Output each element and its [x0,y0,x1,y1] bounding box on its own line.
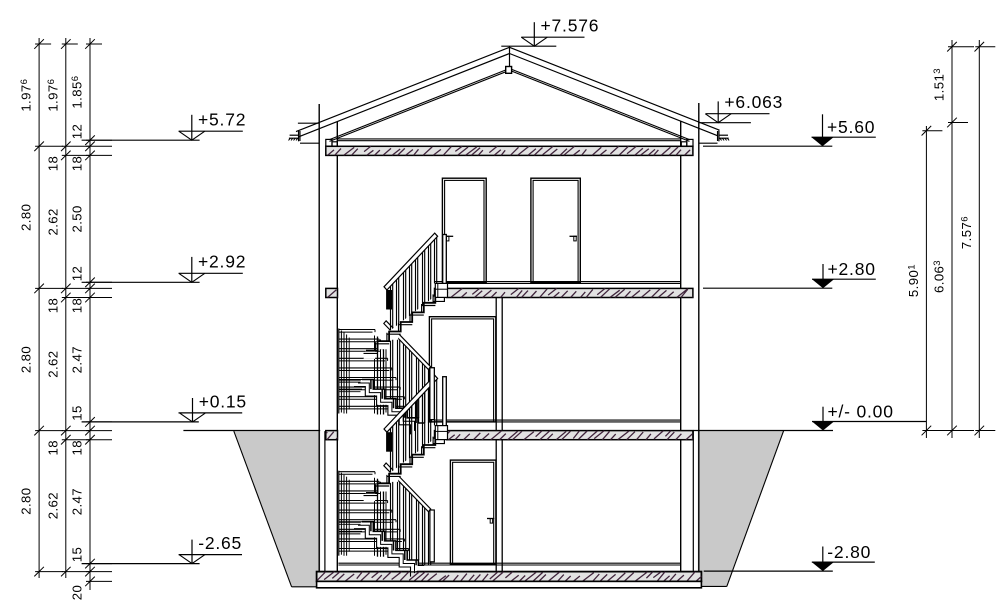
svg-text:2.62: 2.62 [45,208,60,235]
svg-text:20: 20 [70,585,85,600]
svg-text:+2.80: +2.80 [828,259,876,279]
svg-text:2.80: 2.80 [19,204,34,231]
svg-text:2.62: 2.62 [45,350,60,377]
svg-text:2.47: 2.47 [70,488,85,515]
svg-text:18: 18 [45,440,60,455]
svg-text:+0.15: +0.15 [199,391,247,411]
svg-text:+7.576: +7.576 [541,16,600,36]
svg-text:+2.92: +2.92 [198,252,246,272]
svg-text:2.80: 2.80 [19,487,34,514]
svg-text:15: 15 [70,547,85,562]
svg-text:18: 18 [70,298,85,313]
svg-text:18: 18 [45,298,60,313]
svg-text:18: 18 [45,156,60,171]
svg-text:12: 12 [70,266,85,281]
svg-text:18: 18 [70,440,85,455]
svg-text:15: 15 [70,405,85,420]
svg-text:2.50: 2.50 [70,205,85,232]
svg-text:+6.063: +6.063 [724,92,783,112]
svg-text:+5.60: +5.60 [827,117,875,137]
svg-text:2.62: 2.62 [45,492,60,519]
svg-text:2.47: 2.47 [70,346,85,373]
svg-text:-2.80: -2.80 [827,542,871,562]
svg-text:-2.65: -2.65 [198,533,242,553]
svg-text:2.80: 2.80 [19,346,34,373]
svg-text:12: 12 [70,124,85,139]
svg-text:18: 18 [70,156,85,171]
svg-text:+5.72: +5.72 [198,110,246,130]
svg-text:+/- 0.00: +/- 0.00 [828,401,894,421]
